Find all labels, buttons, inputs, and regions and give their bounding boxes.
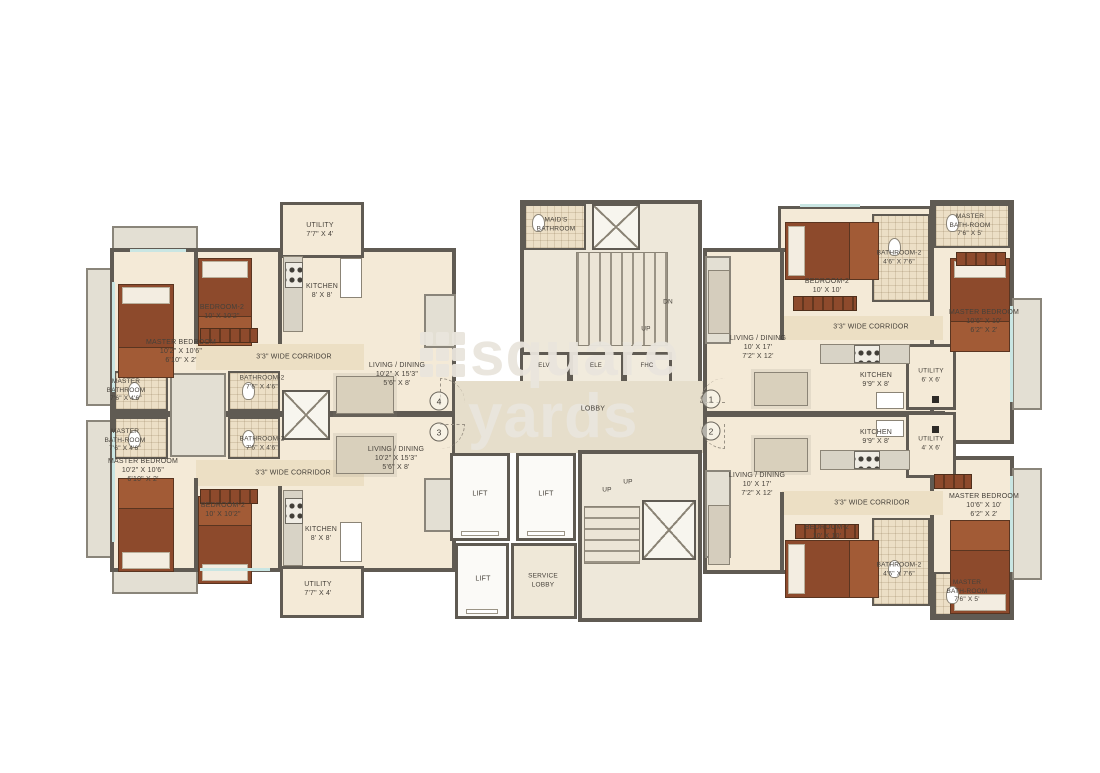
wall [278,252,282,344]
shaft-label-fhc: FHC [641,363,654,371]
duct-shaft [282,390,330,440]
room-label-kitchen: KITCHEN 9'9" X 8' [848,371,904,389]
hob-icon [854,345,880,363]
room-label-master-bedroom: MASTER BEDROOM 10'6" X 10' 6'2" X 2' [940,308,1028,336]
room-label-corridor: 3'3" WIDE CORRIDOR [255,468,330,477]
shaft-label-ele: ELE [590,363,602,371]
balcony [1012,468,1042,580]
dining-table [754,438,808,472]
room-label-corridor: 3'3" WIDE CORRIDOR [834,498,909,507]
stair-label-up: UP [602,487,611,496]
wall [780,250,784,340]
wall [780,492,784,572]
kitchen-sink [876,392,904,409]
room-label-utility: UTILITY 6' X 6' [909,367,953,384]
bed [118,478,174,572]
room-label-maids-bathroom: MAID'S BATHROOM [527,216,585,233]
dining-table [754,372,808,406]
bed [785,540,879,598]
unit-number-badge: 1 [702,390,721,409]
lift-shaft [592,204,640,250]
room-label-service-lobby: SERVICE LOBBY [517,572,569,589]
room-label-living-dining: LIVING / DINING 10'2" X 15'3" 5'6" X 8' [357,361,437,389]
room-label-corridor: 3'3" WIDE CORRIDOR [833,322,908,331]
room-label-kitchen: KITCHEN 8' X 8' [293,525,349,543]
window-glass [112,282,115,392]
room-label-bedroom2: BEDROOM-2 10' X 10' [789,523,865,541]
bed [785,222,879,280]
window-glass [800,204,860,207]
washer-icon [932,396,939,403]
room-label-kitchen: KITCHEN 9'9" X 8' [848,428,904,446]
wardrobe [934,474,972,489]
room-label-bathroom2: BATHROOM-2 4'6" X 7'6" [867,561,931,578]
room-label-utility: UTILITY 7'7" X 4' [290,580,346,598]
room-label-master-bathroom: MASTER BATHROOM 7'6" X 4'6" [97,378,155,404]
room-label-lift: LIFT [472,489,487,498]
shaft-label-elv: ELV [538,363,550,371]
room-label-living-dining: LIVING / DINING 10' X 17' 7'2" X 12' [718,334,798,362]
wall [278,486,282,570]
unit-number-badge: 2 [702,422,721,441]
stair-treads [576,252,668,346]
room-label-bathroom2: BATHROOM-2 4'6" X 7'6" [867,249,931,266]
room-label-lobby: LOBBY [581,404,605,413]
room-label-bedroom2: BEDROOM-2 10' X 10'2" [184,303,260,321]
hob-icon [854,451,880,469]
room-label-bathroom2: BATHROOM-2 7'6" X 4'6" [230,435,294,452]
room-label-living-dining: LIVING / DINING 10'2" X 15'3" 5'6" X 8' [356,445,436,473]
room-label-bathroom2: BATHROOM-2 7'6" X 4'6" [230,374,294,391]
wardrobe [793,296,857,311]
room-label-bedroom2: BEDROOM-2 10' X 10'2" [185,501,261,519]
stair-landing [642,500,696,560]
room-label-master-bedroom: MASTER BEDROOM 10'2" X 10'6" 6'10" X 2' [95,457,191,485]
room-label-corridor: 3'3" WIDE CORRIDOR [256,352,331,361]
room-label-kitchen: KITCHEN 8' X 8' [294,282,350,300]
stair-label-up: UP [623,479,632,488]
room-label-master-bedroom: MASTER BEDROOM 10'6" X 10' 6'2" X 2' [940,492,1028,520]
room-label-living-dining: LIVING / DINING 10' X 17' 7'2" X 12' [717,471,797,499]
room-label-master-bathroom: MASTER BATH-ROOM 7'6" X 4'6" [96,428,154,454]
lobby-floor [455,381,711,453]
room-label-bedroom2: BEDROOM-2 10' X 10' [789,277,865,295]
hob-icon [285,498,303,524]
bed [950,258,1010,352]
room-label-utility: UTILITY 7'7" X 4' [292,221,348,239]
stair-label-up: UP [641,326,650,335]
room-label-lift: LIFT [538,489,553,498]
window-glass [130,249,186,252]
room-label-master-bathroom: MASTER BATH-ROOM 7'6" X 5' [941,213,999,239]
duct-shaft [170,373,226,457]
washer-icon [932,426,939,433]
stair-treads [584,506,640,564]
unit-number-badge: 3 [430,423,449,442]
sofa [708,270,730,334]
floor-plan: square yards MASTER BEDROOM 10'2" X 10'6… [0,0,1100,773]
stair-label-dn: DN [663,299,673,308]
room-label-utility: UTILITY 4' X 6' [909,435,953,452]
sofa [708,505,730,565]
window-glass [1010,476,1013,572]
room-label-master-bedroom: MASTER BEDROOM 10'2" X 10'6" 6'10" X 2' [133,338,229,366]
unit-number-badge: 4 [430,392,449,411]
balcony [424,294,456,348]
room-label-lift: LIFT [475,574,490,583]
window-glass [200,568,270,571]
wardrobe [956,252,1006,266]
room-label-master-bathroom: MASTER BATH-ROOM 7'6" X 5' [938,579,996,605]
